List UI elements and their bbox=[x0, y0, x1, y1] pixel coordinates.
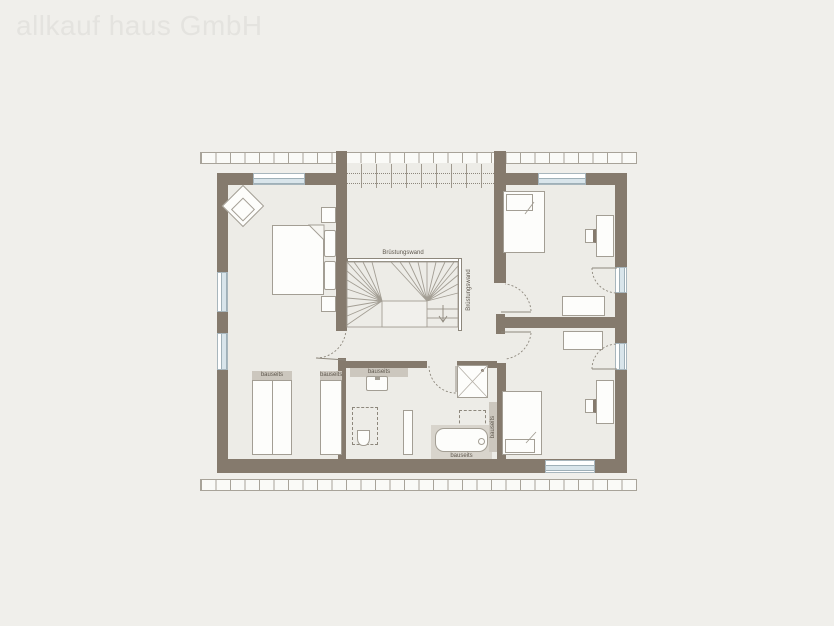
door-swings bbox=[316, 268, 617, 393]
shower-diagonals bbox=[458, 366, 487, 397]
plan-annotations bbox=[0, 0, 834, 626]
staircase bbox=[347, 262, 458, 327]
floor-plan: allkauf haus GmbH Brüstungswand Brüstung… bbox=[0, 0, 834, 626]
